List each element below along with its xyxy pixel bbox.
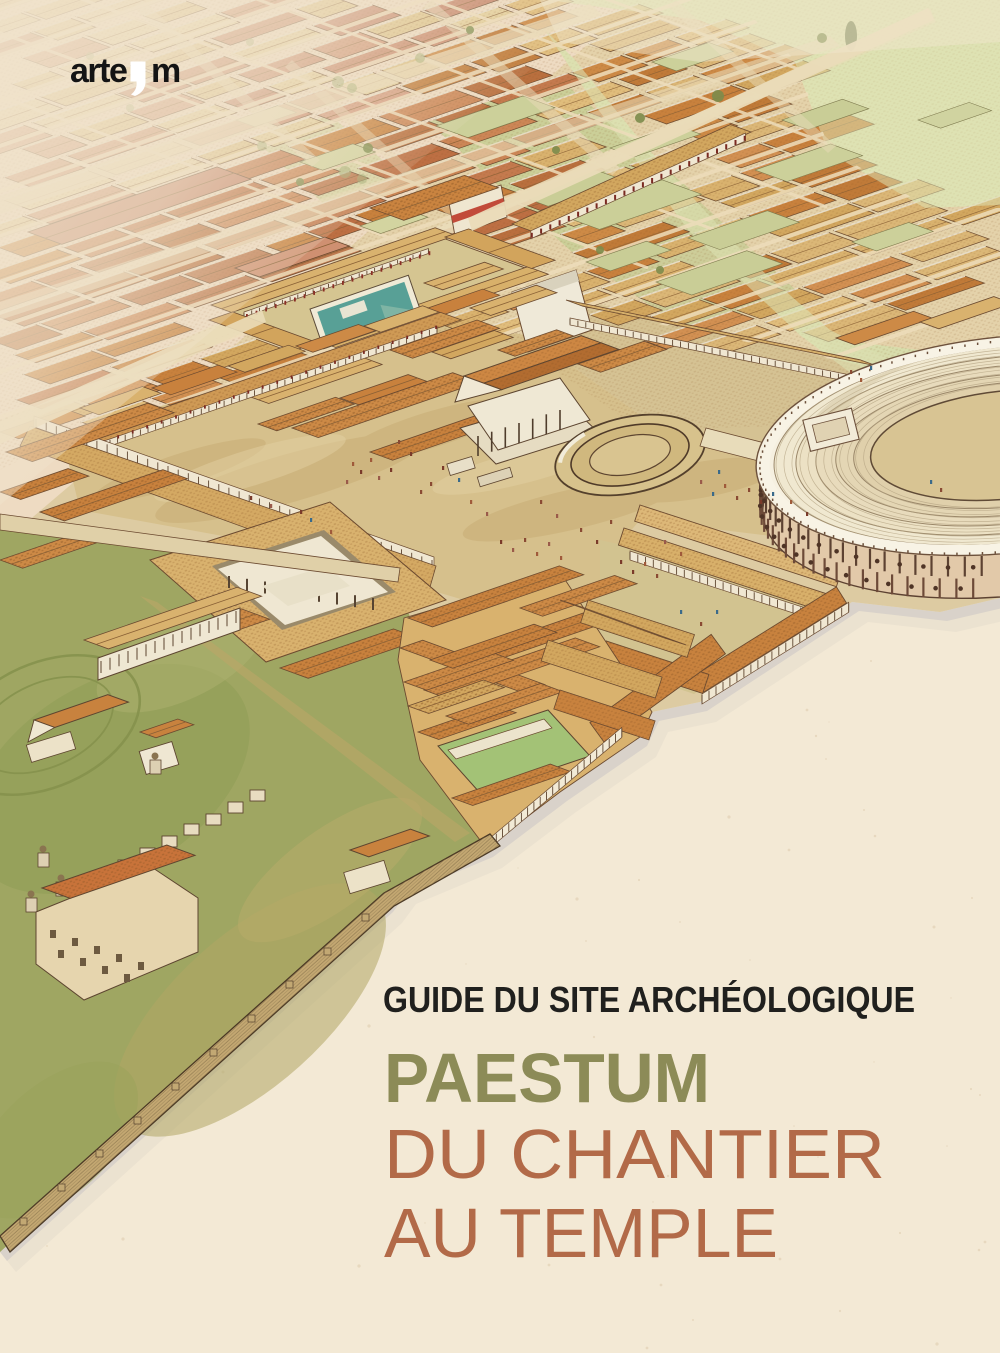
svg-text:GUIDE DU SITE ARCHÉOLOGIQUE: GUIDE DU SITE ARCHÉOLOGIQUE <box>383 979 915 1020</box>
svg-text:AU TEMPLE: AU TEMPLE <box>384 1194 778 1272</box>
svg-text:PAESTUM: PAESTUM <box>384 1039 710 1117</box>
svg-text:arte: arte <box>70 52 127 90</box>
svg-text:DU CHANTIER: DU CHANTIER <box>384 1115 885 1193</box>
svg-text:m: m <box>151 52 181 90</box>
